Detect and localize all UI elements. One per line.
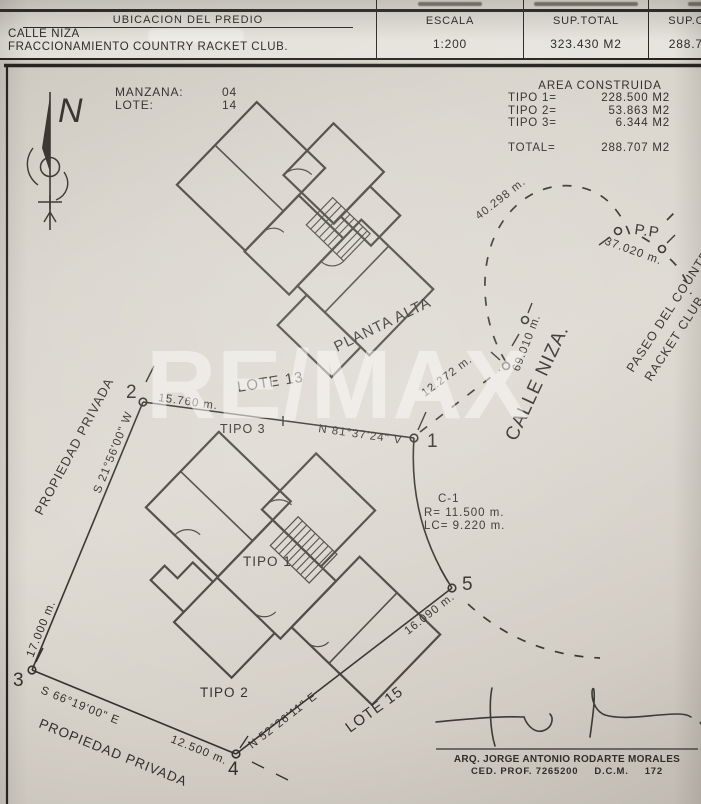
street-point-circle (659, 246, 666, 253)
tipo2-label: TIPO 2 (200, 685, 249, 700)
wall-outline-sw-wing (174, 577, 275, 678)
north-arrow: N (27, 92, 83, 230)
cedula-text: CED. PROF. 7265200 (471, 766, 578, 777)
area-row-value: 228.500 M2 (576, 92, 670, 105)
curve-name: C-1 (438, 493, 460, 505)
title-block-table: UBICACION DEL PREDIO CALLE NIZA FRACCION… (0, 0, 701, 60)
curve-radius: R= 11.500 m. (424, 507, 505, 519)
scanned-site-plan-sheet: UBICACION DEL PREDIO CALLE NIZA FRACCION… (0, 0, 701, 804)
area-total-row: TOTAL= 288.707 M2 (508, 142, 670, 155)
lote13-label: LOTE 13 (236, 369, 305, 396)
vertex-label-4: 4 (228, 759, 240, 780)
architect-signature (436, 688, 701, 749)
ubicacion-cell: UBICACION DEL PREDIO CALLE NIZA FRACCION… (0, 12, 376, 58)
area-construida-block: AREA CONSTRUIDA TIPO 1= 228.500 M2 TIPO … (508, 80, 670, 154)
architect-credit-block: ARQ. JORGE ANTONIO RODARTE MORALES CED. … (436, 754, 698, 777)
lote-value: 14 (222, 99, 237, 112)
manzana-lote-block: MANZANA: 04 LOTE: 14 (115, 86, 285, 112)
sup-total-header: SUP.TOTAL (524, 15, 648, 27)
vertex4-dashes (252, 762, 288, 780)
table-main-row: UBICACION DEL PREDIO CALLE NIZA FRACCION… (0, 12, 701, 60)
vertex-label-3: 3 (13, 670, 25, 691)
area-row-value: 53.863 M2 (576, 105, 670, 118)
wall-outline (283, 123, 383, 223)
street-point-circle (503, 363, 510, 370)
area-row-label: TIPO 1= (508, 92, 557, 105)
boundary-line-3-4 (32, 670, 236, 754)
meas-15760: 15.760 m. (158, 392, 219, 412)
vertex-label-2: 2 (126, 382, 138, 403)
area-row-tipo1: TIPO 1= 228.500 M2 (508, 92, 670, 105)
architect-name: ARQ. JORGE ANTONIO RODARTE MORALES (436, 754, 698, 765)
area-row-tipo3: TIPO 3= 6.344 M2 (508, 117, 670, 130)
interior-wall (156, 426, 397, 663)
north-letter: N (58, 92, 84, 130)
wall-outline (177, 102, 325, 251)
address-line-1: CALLE NIZA (0, 28, 376, 41)
area-row-label: TIPO 2= (508, 105, 557, 118)
cutoff-cell (376, 0, 523, 9)
tipo3-label: TIPO 3 (220, 422, 266, 436)
text-remnant (688, 2, 701, 6)
text-remnant (534, 2, 638, 6)
north-arrow-flourish-left (27, 148, 38, 185)
north-arrow-flourish-right (56, 172, 68, 200)
boundary-line-2-3 (32, 402, 143, 670)
sup-total-value: 323.430 M2 (524, 37, 648, 51)
planta-alta-floorplan (155, 75, 468, 386)
bottom-street-dashed-arc (468, 604, 600, 658)
meas-40298: 40.298 m. (473, 176, 528, 222)
text-remnant (418, 2, 482, 6)
lote15-label: LOTE 15 (342, 683, 406, 736)
propiedad-privada-bottom: PROPIEDAD PRIVADA (37, 716, 190, 789)
bearing-n52: N 52°26'11" E (246, 690, 319, 751)
dcm-label: D.C.M. (594, 766, 628, 777)
address-line-2: FRACCIONAMIENTO COUNTRY RACKET CLUB. (0, 41, 376, 54)
cutoff-cell (523, 0, 648, 9)
address-text-1: CALLE NIZA (8, 28, 80, 40)
escala-value: 1:200 (377, 37, 523, 51)
area-row-label: TIPO 3= (508, 117, 557, 130)
area-construida-title: AREA CONSTRUIDA (508, 80, 670, 92)
signature-stroke (436, 717, 524, 722)
escala-cell: ESCALA 1:200 (376, 12, 523, 58)
wall-outline (262, 453, 375, 566)
tipo1-label: TIPO 1 (243, 554, 292, 569)
architect-license-row: CED. PROF. 7265200 D.C.M. 172 (436, 766, 698, 777)
sup-const-cell: SUP.CONST. 288.707 M2 (648, 12, 701, 58)
area-total-label: TOTAL= (508, 142, 556, 155)
sup-total-cell: SUP.TOTAL 323.430 M2 (523, 12, 648, 58)
area-total-value: 288.707 M2 (576, 142, 670, 155)
dcm-number: 172 (645, 766, 663, 777)
stepped-wall (151, 550, 213, 612)
signature-stroke (524, 714, 552, 731)
area-row-value: 6.344 M2 (576, 117, 670, 130)
ubicacion-header: UBICACION DEL PREDIO (23, 14, 353, 28)
meas-16090: 16.090 m. (402, 591, 457, 637)
curve-data-block: C-1 R= 11.500 m. LC= 9.220 m. (424, 493, 505, 532)
lote-label: LOTE: (115, 99, 222, 112)
table-cutoff-row (0, 0, 701, 12)
cutoff-cell (648, 0, 701, 9)
vertex-label-5: 5 (462, 574, 474, 595)
area-row-tipo2: TIPO 2= 53.863 M2 (508, 105, 670, 118)
meas-12272: 12.272 m. (420, 354, 475, 400)
sup-const-value: 288.707 M2 (649, 37, 701, 51)
street-point-circle (615, 228, 622, 235)
lote-row: LOTE: 14 (115, 99, 285, 112)
escala-header: ESCALA (377, 15, 523, 27)
planta-baja-floorplan (102, 394, 471, 761)
planta-alta-label: PLANTA ALTA (331, 294, 434, 356)
bearing-s21: S 21°56'00" W (92, 410, 136, 495)
wall-outline (217, 520, 336, 639)
vertex-label-1: 1 (427, 431, 439, 452)
interior-wall (185, 111, 389, 313)
signature-stroke (590, 689, 691, 737)
pp-label: P.P (633, 221, 660, 241)
dash-69010 (512, 334, 519, 346)
wall-outline (341, 186, 400, 245)
curve-lc: LC= 9.220 m. (424, 520, 505, 532)
cutoff-cell (0, 0, 376, 9)
bearing-n81: N 81°37'24" V (318, 423, 403, 447)
calle-niza-label: CALLE NIZA. (501, 322, 573, 444)
sup-const-header: SUP.CONST. (649, 15, 701, 27)
